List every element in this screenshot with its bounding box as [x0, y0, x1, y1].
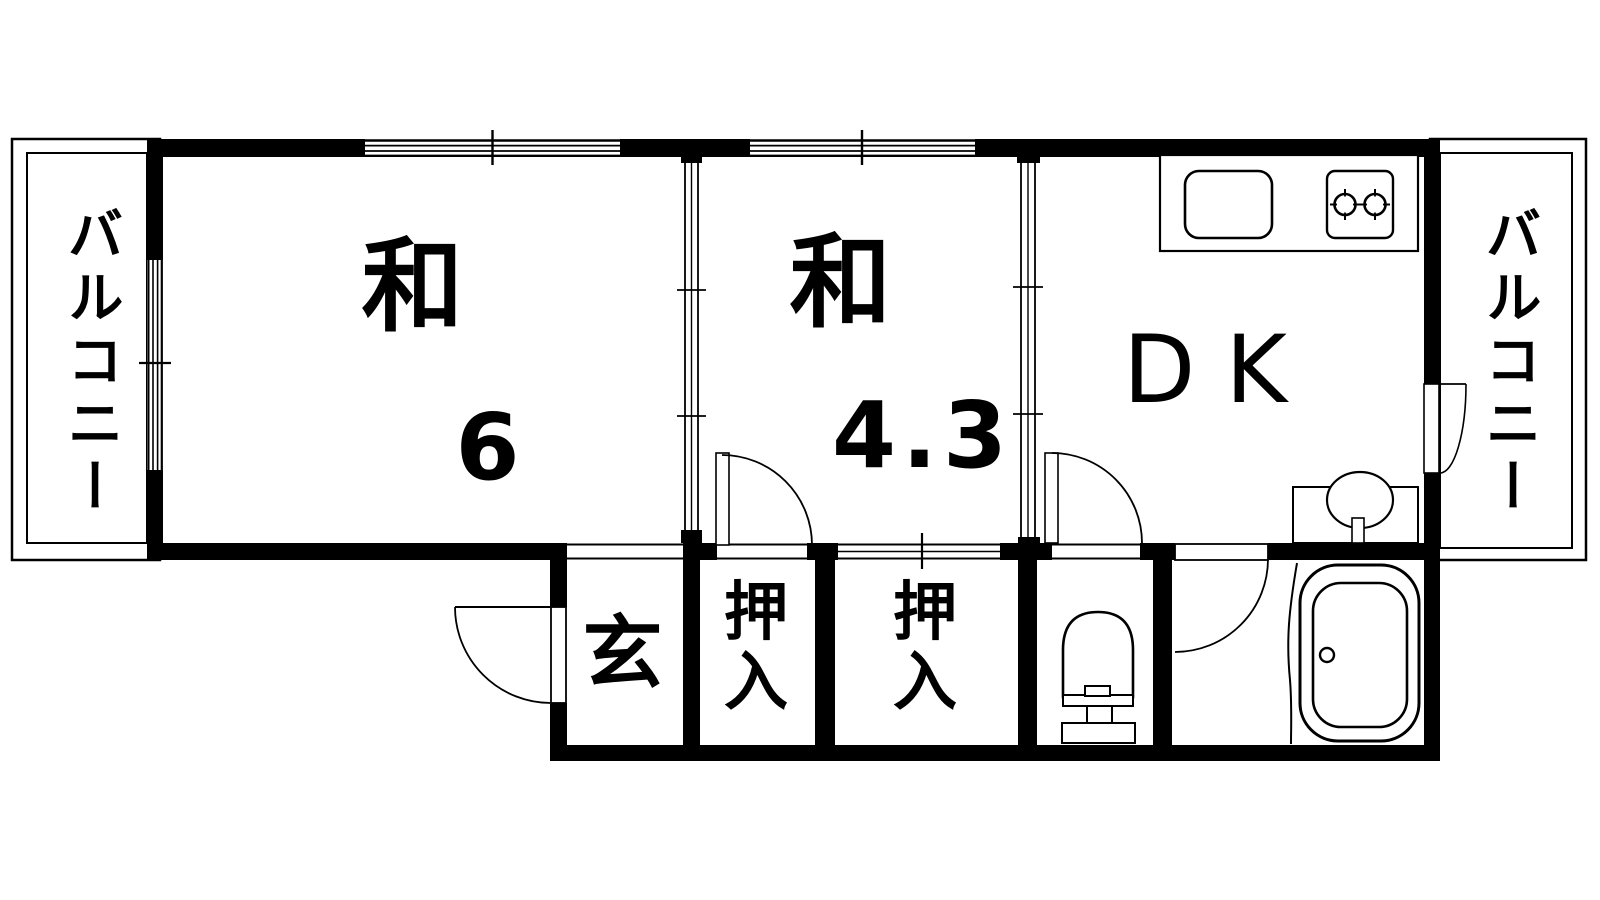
washbasin-tap	[1352, 518, 1364, 543]
room-genkan-label: 玄	[570, 614, 675, 694]
window-top-1	[365, 130, 620, 165]
washbasin	[1293, 472, 1418, 543]
window-top-2	[750, 130, 975, 165]
toilet	[1062, 612, 1135, 743]
balcony-right-label: バルコニー	[1474, 176, 1536, 548]
room-dk-label: DK	[1090, 324, 1350, 418]
gas-stove	[1327, 171, 1393, 238]
opening-genkan-to-room	[567, 543, 683, 560]
room-washitsu6-label: 和	[330, 237, 495, 339]
wall-left-top	[147, 139, 163, 260]
kitchen-counter	[1160, 155, 1418, 251]
door-dk-balcony	[1424, 384, 1466, 473]
opening-toilet-door	[1052, 543, 1140, 560]
partition2-top-block	[1017, 139, 1040, 163]
room-washitsu43-size: 4.3	[820, 390, 1025, 482]
opening-closet1-door	[717, 543, 807, 560]
wall-bottom-f	[1268, 543, 1424, 560]
door-closet1	[716, 453, 812, 545]
bathtub	[1288, 563, 1419, 744]
window-left-balcony-door	[139, 260, 171, 470]
door-bathroom	[1175, 544, 1268, 652]
floor-plan-drawing	[0, 0, 1600, 900]
wall-right-mid	[1424, 473, 1440, 560]
bathtub-drain-icon	[1320, 648, 1334, 662]
wall-toilet-bath	[1153, 543, 1172, 745]
partition1-top-block	[681, 139, 702, 163]
partition-washitsu6-washitsu43	[677, 163, 706, 530]
wall-closet2-toilet	[1018, 543, 1037, 745]
sliding-door-closet2	[838, 533, 1000, 569]
burner-icon	[1365, 194, 1386, 215]
wall-entry-left-top	[550, 543, 567, 607]
wall-top-left	[147, 139, 365, 157]
wall-bottom-a	[147, 543, 567, 560]
closet1-label: 押入	[719, 578, 793, 718]
balcony-left-label: バルコニー	[56, 176, 118, 548]
room-washitsu6-size: 6	[445, 402, 530, 494]
burner-icon	[1335, 194, 1356, 215]
closet2-label: 押入	[888, 578, 962, 718]
wall-closet1-closet2	[815, 543, 835, 745]
wall-genkan-closet1	[683, 543, 700, 745]
door-entrance	[455, 607, 566, 703]
door-toilet	[1045, 453, 1142, 543]
kitchen-sink	[1185, 171, 1272, 238]
wall-right-bath	[1424, 560, 1440, 761]
wall-right-top	[1424, 139, 1440, 384]
room-washitsu43-label: 和	[758, 233, 923, 335]
floor-plan: バルコニー 和 6 和 4.3 DK 玄 押入 押入 バルコニー	[0, 0, 1600, 900]
wall-strip-bottom	[550, 745, 1440, 761]
